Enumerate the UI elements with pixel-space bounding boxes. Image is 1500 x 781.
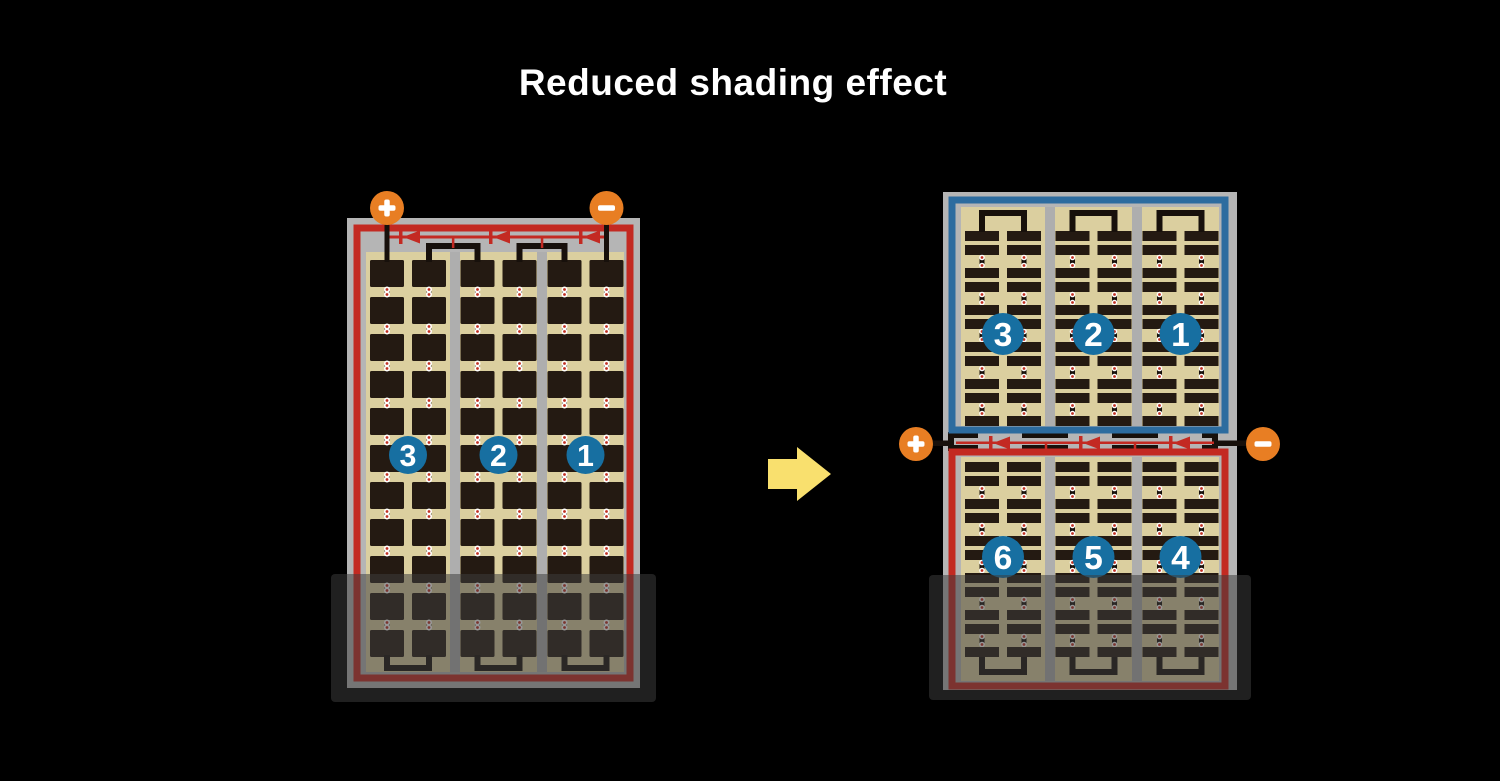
transition-arrow-icon xyxy=(768,447,831,501)
interconnect-dot-center xyxy=(605,478,608,481)
interconnect-dot-center xyxy=(1071,412,1074,415)
solar-cell xyxy=(590,297,624,324)
interconnect-dot-center xyxy=(605,547,608,550)
solar-cell xyxy=(1098,231,1132,241)
solar-cell xyxy=(965,282,999,292)
interconnect-dot-center xyxy=(1200,532,1203,535)
interconnect-dot-center xyxy=(605,404,608,407)
interconnect-dot-center xyxy=(386,478,389,481)
interconnect-dot-center xyxy=(605,552,608,555)
interconnect-dot-center xyxy=(981,367,984,370)
interconnect-dot-center xyxy=(428,441,431,444)
solar-cell xyxy=(1098,282,1132,292)
diode-cathode-bar xyxy=(399,230,403,244)
solar-cell xyxy=(590,482,624,509)
solar-cell xyxy=(370,260,404,287)
solar-cell xyxy=(1007,356,1041,366)
solar-cell xyxy=(1007,513,1041,523)
interconnect-dot-center xyxy=(605,293,608,296)
interconnect-dot-center xyxy=(1158,495,1161,498)
solar-cell xyxy=(1056,379,1090,389)
solar-cell xyxy=(965,513,999,523)
interconnect-dot-center xyxy=(1071,256,1074,259)
interconnect-dot-center xyxy=(476,515,479,518)
solar-cell xyxy=(1007,231,1041,241)
interconnect-dot-center xyxy=(1071,293,1074,296)
interconnect-dot-center xyxy=(428,552,431,555)
solar-cell xyxy=(1007,393,1041,403)
interconnect-dot-center xyxy=(605,436,608,439)
interconnect-dot-center xyxy=(1023,532,1026,535)
interconnect-dot-center xyxy=(518,362,521,365)
plus-terminal-icon xyxy=(899,427,933,461)
solar-cell xyxy=(1185,231,1219,241)
string-label: 3 xyxy=(400,439,417,473)
interconnect-dot-center xyxy=(563,473,566,476)
solar-cell xyxy=(1098,356,1132,366)
string-label: 5 xyxy=(1084,540,1103,577)
interconnect-dot-center xyxy=(1023,487,1026,490)
minus-terminal-icon xyxy=(1246,427,1280,461)
shading-overlay xyxy=(929,575,1251,700)
interconnect-dot-center xyxy=(428,436,431,439)
plus-terminal-icon xyxy=(370,191,404,225)
solar-cell xyxy=(1056,513,1090,523)
interconnect-dot-center xyxy=(563,325,566,328)
interconnect-dot-center xyxy=(1158,301,1161,304)
interconnect-dot-center xyxy=(1023,293,1026,296)
interconnect-dot-center xyxy=(1071,367,1074,370)
solar-cell xyxy=(370,371,404,398)
interconnect-dot-center xyxy=(981,375,984,378)
solar-cell xyxy=(1098,379,1132,389)
right-panel: 321654 xyxy=(899,192,1280,700)
interconnect-dot-center xyxy=(1023,264,1026,267)
shading-overlay xyxy=(331,574,656,702)
solar-cell xyxy=(1185,305,1219,315)
interconnect-dot-center xyxy=(386,441,389,444)
interconnect-dot-center xyxy=(563,404,566,407)
interconnect-dot-center xyxy=(605,367,608,370)
string-label: 3 xyxy=(994,317,1013,354)
interconnect-dot-center xyxy=(428,362,431,365)
interconnect-dot-center xyxy=(605,330,608,333)
interconnect-dot-center xyxy=(518,367,521,370)
terminal-symbol xyxy=(913,436,919,453)
interconnect-dot-center xyxy=(1158,256,1161,259)
terminal-stem xyxy=(1218,441,1247,447)
interconnect-dot-center xyxy=(981,495,984,498)
interconnect-dot-center xyxy=(1113,532,1116,535)
solar-cell xyxy=(1185,513,1219,523)
string-label: 6 xyxy=(994,540,1013,577)
interconnect-dot-center xyxy=(1113,375,1116,378)
interconnect-dot-center xyxy=(1200,264,1203,267)
string-label-badge: 5 xyxy=(1073,536,1115,578)
interconnect-dot-center xyxy=(428,330,431,333)
interconnect-dot-center xyxy=(1158,524,1161,527)
interconnect-dot-center xyxy=(1023,569,1026,572)
solar-cell xyxy=(1143,379,1177,389)
interconnect-dot-center xyxy=(476,288,479,291)
interconnect-dot-center xyxy=(1071,532,1074,535)
solar-cell xyxy=(1143,513,1177,523)
interconnect-dot-center xyxy=(518,510,521,513)
solar-cell xyxy=(548,408,582,435)
solar-cell xyxy=(1185,356,1219,366)
solar-cell xyxy=(1007,245,1041,255)
interconnect-dot-center xyxy=(518,478,521,481)
interconnect-dot-center xyxy=(1023,524,1026,527)
solar-cell xyxy=(370,408,404,435)
solar-cell xyxy=(412,482,446,509)
diagram-canvas: Reduced shading effect 321321654 xyxy=(0,0,1500,781)
interconnect-dot-center xyxy=(981,264,984,267)
solar-cell xyxy=(1185,268,1219,278)
terminal-symbol xyxy=(1255,441,1272,447)
interconnect-dot-center xyxy=(518,552,521,555)
interconnect-dot-center xyxy=(518,473,521,476)
solar-cell xyxy=(503,408,537,435)
solar-cell xyxy=(1143,462,1177,472)
solar-cell xyxy=(412,408,446,435)
solar-cell xyxy=(461,482,495,509)
solar-cell xyxy=(412,519,446,546)
solar-cell xyxy=(503,371,537,398)
interconnect-dot-center xyxy=(428,325,431,328)
interconnect-dot-center xyxy=(1113,367,1116,370)
interconnect-dot-center xyxy=(518,288,521,291)
interconnect-dot-center xyxy=(605,362,608,365)
interconnect-dot-center xyxy=(981,293,984,296)
interconnect-dot-center xyxy=(605,515,608,518)
interconnect-dot-center xyxy=(428,399,431,402)
solar-cell xyxy=(1007,462,1041,472)
solar-cell xyxy=(1143,282,1177,292)
interconnect-dot-center xyxy=(1071,404,1074,407)
solar-cell xyxy=(1098,268,1132,278)
interconnect-dot-center xyxy=(1023,404,1026,407)
interconnect-dot-center xyxy=(476,552,479,555)
interconnect-dot-center xyxy=(518,325,521,328)
interconnect-dot-center xyxy=(563,293,566,296)
solar-cell xyxy=(1056,245,1090,255)
interconnect-dot-center xyxy=(476,478,479,481)
solar-cell xyxy=(1007,499,1041,509)
interconnect-dot-center xyxy=(476,441,479,444)
solar-cell xyxy=(1143,476,1177,486)
interconnect-dot-center xyxy=(981,256,984,259)
solar-cell xyxy=(590,519,624,546)
solar-cell xyxy=(1143,356,1177,366)
interconnect-dot-center xyxy=(1113,412,1116,415)
solar-cell xyxy=(1098,499,1132,509)
interconnect-dot-center xyxy=(1023,375,1026,378)
interconnect-dot-center xyxy=(386,552,389,555)
interconnect-dot-center xyxy=(518,547,521,550)
minus-terminal-icon xyxy=(590,191,624,225)
interconnect-dot-center xyxy=(476,399,479,402)
interconnect-dot-center xyxy=(1200,404,1203,407)
interconnect-dot-center xyxy=(605,288,608,291)
solar-cell xyxy=(1056,305,1090,315)
interconnect-dot-center xyxy=(1200,524,1203,527)
terminal-symbol xyxy=(598,205,615,211)
solar-cell xyxy=(461,408,495,435)
interconnect-dot-center xyxy=(386,404,389,407)
interconnect-dot-center xyxy=(981,487,984,490)
solar-cell xyxy=(965,462,999,472)
interconnect-dot-center xyxy=(981,404,984,407)
solar-cell xyxy=(965,476,999,486)
interconnect-dot-center xyxy=(1113,487,1116,490)
string-label-badge: 6 xyxy=(982,536,1024,578)
interconnect-dot-center xyxy=(428,473,431,476)
solar-cell xyxy=(370,297,404,324)
interconnect-dot-center xyxy=(605,399,608,402)
string-label-badge: 1 xyxy=(567,436,605,474)
interconnect-dot-center xyxy=(386,473,389,476)
solar-cell xyxy=(548,260,582,287)
solar-cell xyxy=(1007,476,1041,486)
interconnect-dot-center xyxy=(518,404,521,407)
solar-cell xyxy=(461,260,495,287)
solar-cell xyxy=(461,334,495,361)
interconnect-dot-center xyxy=(476,293,479,296)
solar-cell xyxy=(1056,356,1090,366)
diode-cathode-bar xyxy=(489,230,493,244)
solar-cell xyxy=(1056,416,1090,426)
solar-cell xyxy=(503,519,537,546)
solar-cell xyxy=(461,371,495,398)
interconnect-dot-center xyxy=(563,330,566,333)
interconnect-dot-center xyxy=(1023,412,1026,415)
string-label-badge: 3 xyxy=(982,313,1024,355)
solar-cell xyxy=(1143,245,1177,255)
solar-cell xyxy=(1098,416,1132,426)
interconnect-dot-center xyxy=(1071,301,1074,304)
interconnect-dot-center xyxy=(518,441,521,444)
string-label: 2 xyxy=(490,439,507,473)
solar-cell xyxy=(1056,282,1090,292)
interconnect-dot-center xyxy=(428,547,431,550)
solar-cell xyxy=(1185,462,1219,472)
interconnect-dot-center xyxy=(563,547,566,550)
interconnect-dot-center xyxy=(1071,375,1074,378)
solar-cell xyxy=(965,393,999,403)
interconnect-dot-center xyxy=(1113,256,1116,259)
interconnect-dot-center xyxy=(981,301,984,304)
string-label-badge: 4 xyxy=(1160,536,1202,578)
solar-cell xyxy=(1098,476,1132,486)
interconnect-dot-center xyxy=(476,436,479,439)
diode-cathode-bar xyxy=(579,230,583,244)
solar-cell xyxy=(1143,231,1177,241)
interconnect-dot-center xyxy=(518,515,521,518)
interconnect-dot-center xyxy=(1071,524,1074,527)
solar-cell xyxy=(1098,245,1132,255)
string-label: 1 xyxy=(1171,317,1190,354)
interconnect-dot-center xyxy=(1200,256,1203,259)
interconnect-dot-center xyxy=(518,436,521,439)
solar-cell xyxy=(1185,393,1219,403)
interconnect-dot-center xyxy=(605,473,608,476)
solar-cell xyxy=(370,482,404,509)
solar-cell xyxy=(412,260,446,287)
solar-cell xyxy=(590,371,624,398)
column-divider xyxy=(1045,207,1055,426)
diode-tap xyxy=(452,237,455,248)
interconnect-dot-center xyxy=(476,510,479,513)
solar-cell xyxy=(965,379,999,389)
solar-cell xyxy=(965,268,999,278)
interconnect-dot-center xyxy=(1200,569,1203,572)
interconnect-dot-center xyxy=(1200,367,1203,370)
solar-cell xyxy=(1185,379,1219,389)
solar-cell xyxy=(965,245,999,255)
solar-cell xyxy=(503,297,537,324)
solar-cell xyxy=(1098,513,1132,523)
interconnect-dot-center xyxy=(1158,367,1161,370)
solar-cell xyxy=(965,305,999,315)
interconnect-dot-center xyxy=(428,367,431,370)
solar-cell xyxy=(1056,393,1090,403)
interconnect-dot-center xyxy=(518,293,521,296)
solar-cell xyxy=(1098,462,1132,472)
string-label-badge: 2 xyxy=(480,436,518,474)
solar-cell xyxy=(1056,231,1090,241)
terminal-stem xyxy=(931,441,951,447)
solar-cell xyxy=(1143,416,1177,426)
string-label-badge: 3 xyxy=(389,436,427,474)
interconnect-dot-center xyxy=(1071,495,1074,498)
interconnect-dot-center xyxy=(1158,375,1161,378)
interconnect-dot-center xyxy=(476,473,479,476)
solar-cell xyxy=(548,334,582,361)
interconnect-dot-center xyxy=(1158,412,1161,415)
terminal-symbol xyxy=(384,200,390,217)
solar-cell xyxy=(548,519,582,546)
interconnect-dot-center xyxy=(476,404,479,407)
interconnect-dot-center xyxy=(1023,301,1026,304)
interconnect-dot-center xyxy=(1023,367,1026,370)
interconnect-dot-center xyxy=(605,441,608,444)
solar-cell xyxy=(1007,268,1041,278)
solar-cell xyxy=(1007,282,1041,292)
interconnect-dot-center xyxy=(563,362,566,365)
interconnect-dot-center xyxy=(386,293,389,296)
interconnect-dot-center xyxy=(981,532,984,535)
interconnect-dot-center xyxy=(428,510,431,513)
solar-cell xyxy=(1143,268,1177,278)
interconnect-dot-center xyxy=(1071,569,1074,572)
interconnect-dot-center xyxy=(1158,487,1161,490)
interconnect-dot-center xyxy=(563,436,566,439)
diode-cathode-bar xyxy=(1079,436,1083,450)
interconnect-dot-center xyxy=(563,399,566,402)
solar-cell xyxy=(548,371,582,398)
string-label: 2 xyxy=(1084,317,1103,354)
interconnect-dot-center xyxy=(1113,524,1116,527)
solar-cell xyxy=(548,482,582,509)
diode-tap xyxy=(541,237,544,248)
interconnect-dot-center xyxy=(981,524,984,527)
interconnect-dot-center xyxy=(428,478,431,481)
interconnect-dot-center xyxy=(518,330,521,333)
solar-cell xyxy=(590,260,624,287)
interconnect-dot-center xyxy=(476,547,479,550)
interconnect-dot-center xyxy=(563,441,566,444)
solar-cell xyxy=(1007,379,1041,389)
solar-cell xyxy=(370,519,404,546)
interconnect-dot-center xyxy=(1200,412,1203,415)
interconnect-dot-center xyxy=(1023,256,1026,259)
interconnect-dot-center xyxy=(1071,487,1074,490)
interconnect-dot-center xyxy=(386,547,389,550)
solar-cell xyxy=(461,297,495,324)
solar-cell xyxy=(1185,476,1219,486)
interconnect-dot-center xyxy=(476,367,479,370)
solar-cell xyxy=(965,416,999,426)
solar-cell xyxy=(412,297,446,324)
solar-cell xyxy=(590,408,624,435)
interconnect-dot-center xyxy=(428,404,431,407)
interconnect-dot-center xyxy=(1113,293,1116,296)
solar-cell xyxy=(1143,305,1177,315)
solar-cell xyxy=(965,356,999,366)
interconnect-dot-center xyxy=(1023,495,1026,498)
interconnect-dot-center xyxy=(563,478,566,481)
interconnect-dot-center xyxy=(981,412,984,415)
solar-cell xyxy=(412,371,446,398)
interconnect-dot-center xyxy=(563,515,566,518)
interconnect-dot-center xyxy=(1158,264,1161,267)
solar-cell xyxy=(1098,305,1132,315)
interconnect-dot-center xyxy=(1071,264,1074,267)
interconnect-dot-center xyxy=(1200,495,1203,498)
interconnect-dot-center xyxy=(428,515,431,518)
string-label: 4 xyxy=(1171,540,1190,577)
solar-cell xyxy=(1143,499,1177,509)
interconnect-dot-center xyxy=(386,510,389,513)
interconnect-dot-center xyxy=(476,325,479,328)
solar-cell xyxy=(1056,499,1090,509)
interconnect-dot-center xyxy=(386,325,389,328)
interconnect-dot-center xyxy=(428,293,431,296)
shading-effect-diagram: 321321654 xyxy=(0,0,1500,781)
interconnect-dot-center xyxy=(563,510,566,513)
diode-cathode-bar xyxy=(1169,436,1173,450)
solar-cell xyxy=(590,334,624,361)
interconnect-dot-center xyxy=(1200,301,1203,304)
interconnect-dot-center xyxy=(1113,264,1116,267)
interconnect-dot-center xyxy=(386,399,389,402)
solar-cell xyxy=(503,334,537,361)
interconnect-dot-center xyxy=(563,552,566,555)
solar-cell xyxy=(1056,268,1090,278)
interconnect-dot-center xyxy=(386,362,389,365)
diode-cathode-bar xyxy=(989,436,993,450)
interconnect-dot-center xyxy=(1158,404,1161,407)
solar-cell xyxy=(548,297,582,324)
interconnect-dot-center xyxy=(428,288,431,291)
interconnect-dot-center xyxy=(1158,532,1161,535)
interconnect-dot-center xyxy=(1200,487,1203,490)
column-divider xyxy=(1132,207,1142,426)
interconnect-dot-center xyxy=(1113,569,1116,572)
interconnect-dot-center xyxy=(1200,293,1203,296)
solar-cell xyxy=(1098,393,1132,403)
